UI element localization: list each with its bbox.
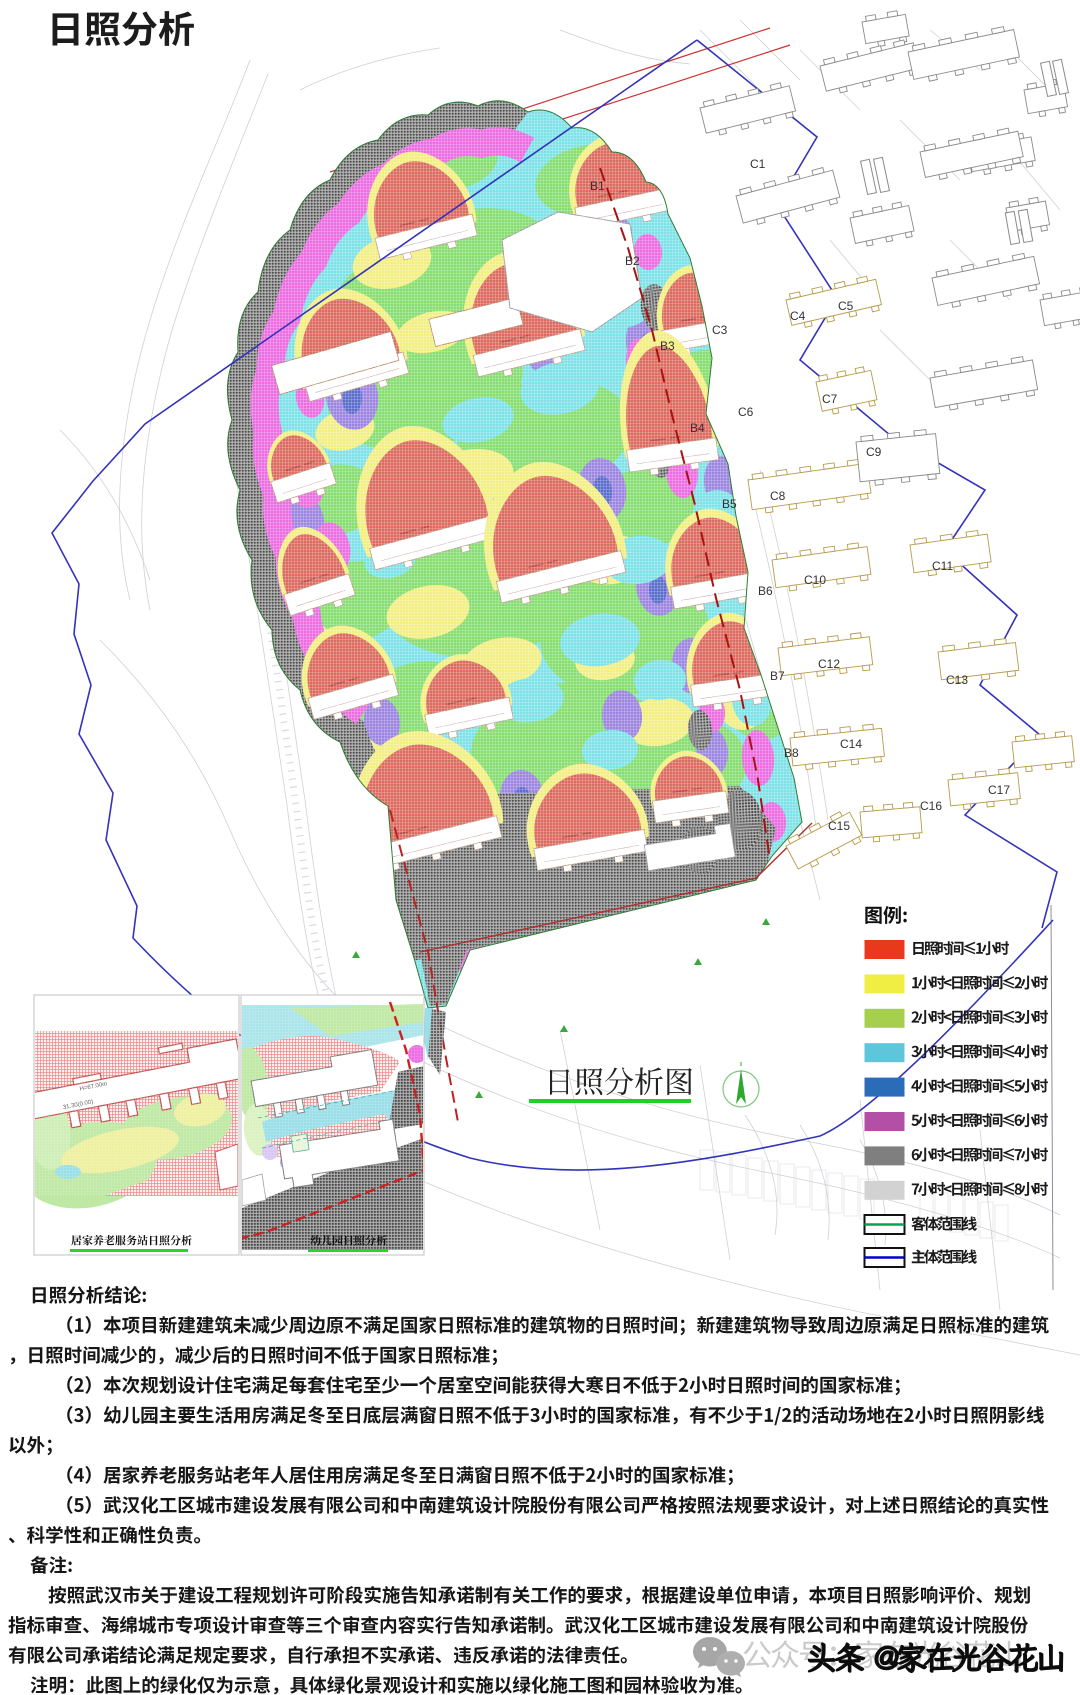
svg-text:C14: C14 <box>840 737 862 751</box>
svg-text:B7: B7 <box>770 669 785 683</box>
svg-text:C6: C6 <box>738 405 754 419</box>
svg-text:B2: B2 <box>625 254 640 268</box>
svg-text:B5: B5 <box>722 497 737 511</box>
svg-text:C1: C1 <box>750 157 766 171</box>
svg-text:C8: C8 <box>770 489 786 503</box>
svg-text:B6: B6 <box>758 584 773 598</box>
svg-text:B1: B1 <box>590 179 605 193</box>
svg-text:C11: C11 <box>932 559 953 573</box>
svg-text:C3: C3 <box>712 323 728 337</box>
svg-text:C9: C9 <box>866 445 882 459</box>
svg-text:C10: C10 <box>804 573 826 587</box>
svg-text:B4: B4 <box>690 421 705 435</box>
svg-text:C16: C16 <box>920 799 942 813</box>
svg-text:C5: C5 <box>838 299 854 313</box>
svg-text:C12: C12 <box>818 657 840 671</box>
svg-text:C15: C15 <box>828 819 850 833</box>
svg-text:C13: C13 <box>946 673 968 687</box>
svg-text:C4: C4 <box>790 309 806 323</box>
svg-text:C7: C7 <box>822 392 838 406</box>
svg-text:B3: B3 <box>660 339 675 353</box>
svg-text:B8: B8 <box>784 746 799 760</box>
svg-text:C17: C17 <box>988 783 1010 797</box>
